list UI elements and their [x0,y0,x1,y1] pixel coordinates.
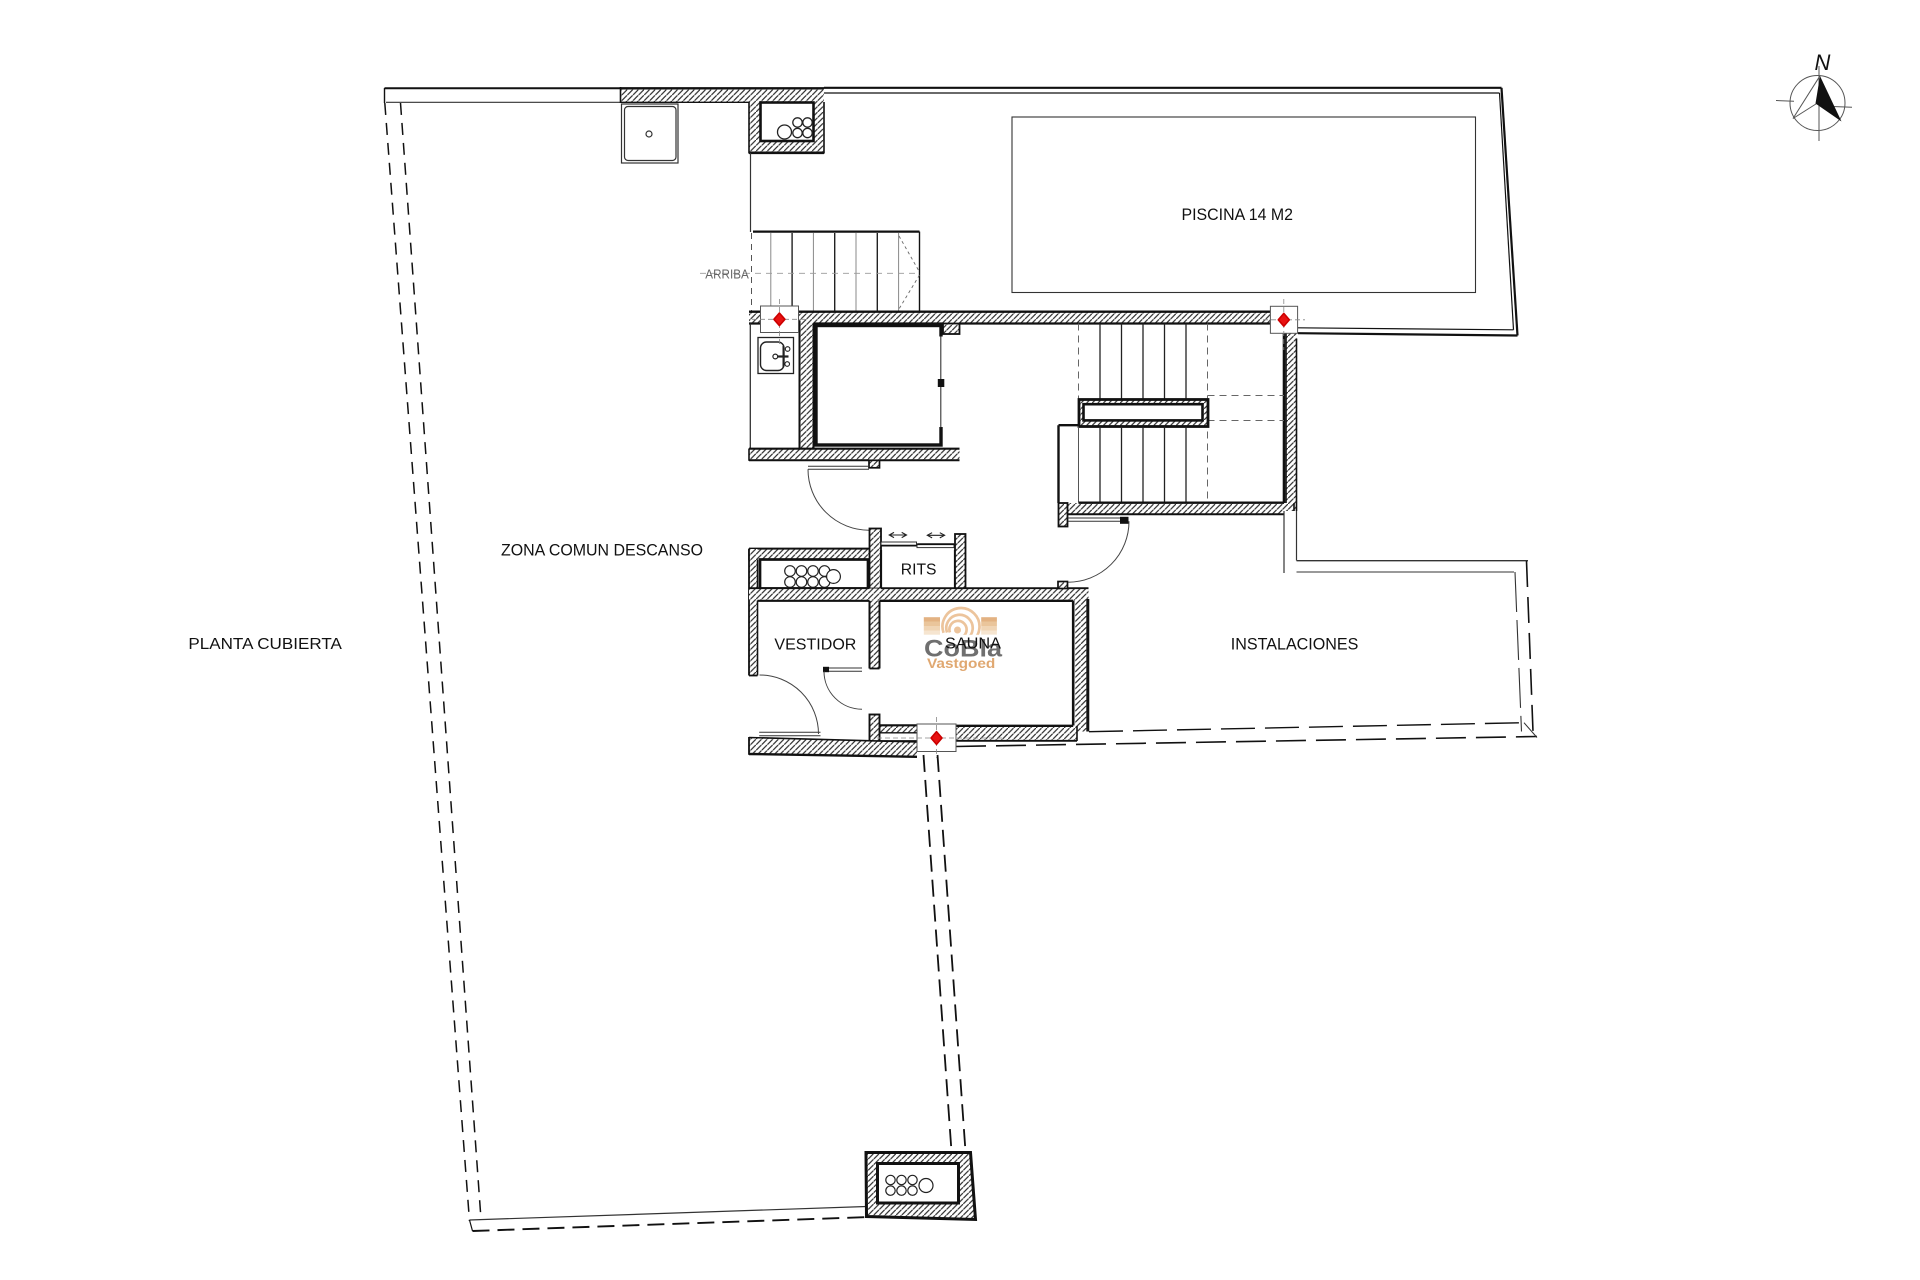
svg-text:SAUNA: SAUNA [945,636,1002,653]
svg-text:ZONA COMUN DESCANSO: ZONA COMUN DESCANSO [501,541,703,560]
svg-text:ARRIBA: ARRIBA [705,267,749,282]
svg-text:VESTIDOR: VESTIDOR [774,636,856,653]
svg-text:PLANTA CUBIERTA: PLANTA CUBIERTA [188,636,342,653]
svg-text:Vastgoed: Vastgoed [927,656,995,671]
svg-text:N: N [1815,50,1831,75]
svg-text:INSTALACIONES: INSTALACIONES [1231,636,1359,654]
svg-text:PISCINA 14 M2: PISCINA 14 M2 [1182,206,1294,224]
svg-text:RITS: RITS [901,561,937,578]
